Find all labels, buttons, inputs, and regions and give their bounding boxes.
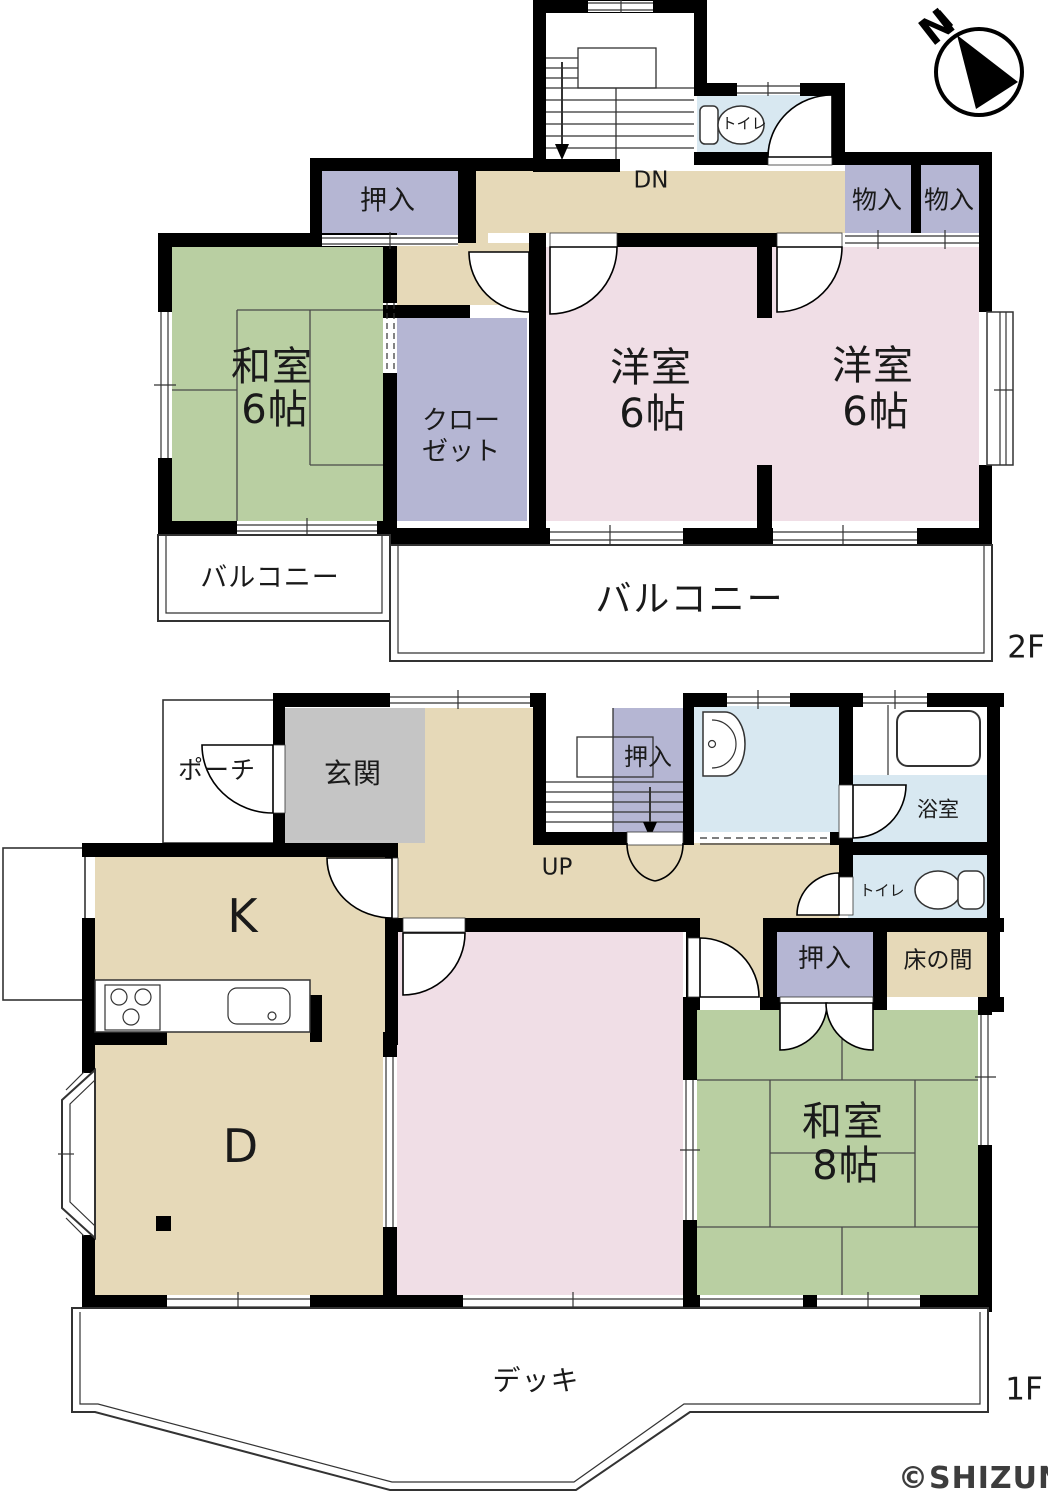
washitsu8-name: 和室: [802, 1102, 884, 1142]
yoshitsu2-size: 6帖: [842, 392, 909, 432]
balcony-small-label: バルコニー: [200, 565, 339, 592]
closet-2f-label-1: クロー: [422, 408, 500, 434]
toilet-1f-bowl-icon: [915, 871, 961, 909]
compass-needle: [957, 35, 1018, 109]
stairwell-2f: [546, 13, 694, 159]
stairs-up-label: UP: [542, 857, 573, 880]
watermark: ©SHIZUNAVI: [898, 1461, 1048, 1496]
oshiire-2f-label: 押入: [360, 188, 416, 215]
bay-window: [58, 1070, 95, 1238]
porch-label: ポーチ: [178, 758, 256, 783]
kitchen-porch-outline: [3, 848, 85, 1000]
tokonoma-label: 床の間: [904, 950, 973, 973]
dining-label: D: [223, 1123, 259, 1169]
floorplan-canvas: N 押入 トイレ DN 物入 物入 和室 6帖 クロー ゼット 洋室 6帖 洋室…: [0, 0, 1048, 1499]
sink-icon: [228, 988, 290, 1024]
hall-1f-b: [398, 843, 839, 918]
mononyu1-label: 物入: [852, 188, 902, 213]
floor2-label: 2F: [1007, 633, 1045, 664]
oshiire-1f-label: 押入: [798, 946, 852, 972]
toilet-1f-label: トイレ: [859, 884, 904, 899]
genkan-label: 玄関: [324, 760, 382, 788]
closet-2f-label-2: ゼット: [422, 439, 500, 465]
kitchen-label: K: [227, 893, 258, 939]
toilet-2f-label: トイレ: [721, 117, 766, 132]
mononyu2-label: 物入: [924, 188, 974, 213]
bath-label: 浴室: [917, 800, 959, 821]
stairs-1f-floor: [546, 708, 613, 832]
pillar: [156, 1216, 171, 1231]
washitsu8-size: 8帖: [812, 1146, 879, 1186]
stairs-oshiire-label: 押入: [624, 745, 672, 769]
yoshitsu1-size: 6帖: [619, 394, 686, 434]
washitsu6-name: 和室: [231, 347, 313, 387]
stairs-dn-label: DN: [634, 170, 669, 193]
balconies: [158, 535, 992, 661]
toilet-2f-tank-icon: [700, 106, 718, 144]
bathtub-icon: [897, 711, 980, 766]
floorplan-drawing: N: [0, 0, 1048, 1499]
compass-north-label: N: [911, 0, 963, 54]
floor1-label: 1F: [1005, 1375, 1043, 1406]
deck-label: デッキ: [492, 1367, 579, 1395]
living-floor: [397, 932, 683, 1295]
hall-1f-a: [425, 708, 533, 843]
yoshitsu1-name: 洋室: [610, 348, 692, 388]
toilet-1f-tank-icon: [958, 871, 984, 909]
compass: N: [911, 0, 1022, 115]
deck-outline: [72, 1308, 988, 1490]
yoshitsu2-name: 洋室: [832, 346, 914, 386]
balcony-large-label: バルコニー: [595, 582, 784, 618]
washitsu6-size: 6帖: [241, 390, 308, 430]
